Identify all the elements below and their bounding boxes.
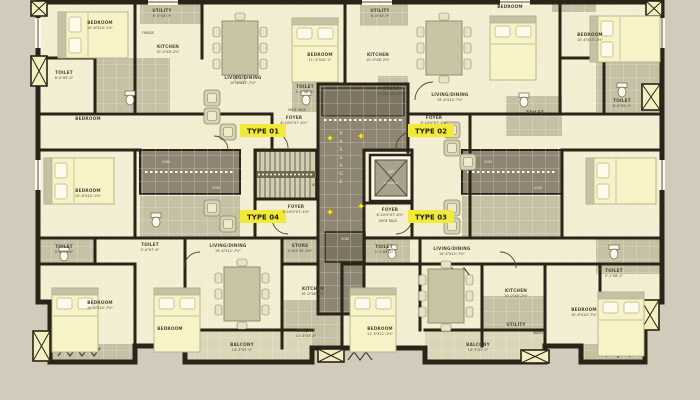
dims-bedroom-tr2: 10'-6"X10'-1½" [577,38,603,42]
label-store-tr: STORE [383,86,400,91]
type-02-label: TYPE 02 [415,128,447,136]
label-toilet-tl: TOILET [55,70,73,75]
label-foyer-3: FOYER [288,204,305,209]
label-kitchen-bc: KITCHEN [302,286,324,291]
label-utility-tr: UTILITY [370,8,390,13]
label-bedroom-bc: BEDROOM [367,326,392,331]
sofa-seat [204,90,220,106]
dims-bedroom-bl1: 10'-6"X10'-7½" [87,306,113,310]
bed [154,288,200,352]
floor-plan-drawing: TYPE 01 TYPE 02 TYPE 04 TYPE 03 BEDROOM … [0,0,700,400]
label-toilet-br: TOILET [605,268,623,273]
dims-utility-tl: 6'-0"X3'-9" [153,14,172,18]
label-kitchen-br: KITCHEN [505,288,527,293]
label-toilet-bl: TOILET [55,244,73,249]
toilet-wc [617,83,627,97]
bed [598,292,644,356]
dims-foyer-4: 6'-10½"X7'-4½" [376,213,404,217]
label-kitchen-tr: KITCHEN [367,52,389,57]
label-toilet-bc: TOILET [375,244,393,249]
label-lift: LIFT [388,170,394,174]
bed [52,288,98,352]
floor-plan: TYPE 01 TYPE 02 TYPE 04 TYPE 03 BEDROOM … [0,0,700,400]
label-shoe-rack-2: SHOE RACK [379,219,398,223]
label-up: UP [312,183,316,187]
label-bedroom-tr2: BEDROOM [577,32,602,37]
label-wash-br: WASH [533,331,543,335]
label-passage: PASSAGE [338,131,343,188]
sofa-seat [444,140,460,156]
sofa-seat [220,216,236,232]
label-bedroom-tc: BEDROOM [307,52,332,57]
dims-foyer-3: 6'-10½"X7'-4½" [282,210,310,214]
dims-bedroom-bc: 11'-3"X12'-1½" [367,332,393,336]
sofa-seat [204,108,220,124]
label-toilet-tc: TOILET [296,84,314,89]
label-store-bl: STORE [292,243,309,248]
lift-shaft [370,155,412,201]
dims-kitchen-tr: 10'-0"X8'-2½" [366,58,390,62]
label-living-b1: LIVING/DINING [209,243,246,248]
dims-kitchen-tl: 10'-0"X8'-2½" [156,50,180,54]
toilet-wc [609,245,619,259]
label-utility-bc: UTILITY [296,328,316,333]
dims-living-t2: 19'-4"X12'-7½" [437,98,463,102]
label-bedroom-tl2: BEDROOM [75,116,100,121]
bed [58,12,128,58]
label-void-3: VOID [484,160,493,164]
dims-living-b1: 19'-4"X12'-7½" [215,249,241,253]
label-foyer-4: FOYER [382,207,399,212]
sofa-seat [220,124,236,140]
dims-toilet-tl: 8'-0"X5'-0" [55,76,74,80]
label-living-t2: LIVING/DINING [431,92,468,97]
dims-bedroom-tc: 11'-3"X10'-2" [309,58,332,62]
toilet-wc [519,93,529,107]
label-bedroom-tl: BEDROOM [87,20,112,25]
label-bedroom-tr1: BEDROOM [497,4,522,9]
label-bedroom-br: BEDROOM [571,307,596,312]
toilet-wc [125,91,135,105]
dims-balcony-r: 14'-3"X5'-0" [468,348,489,352]
dims-toilet-bc: 5'-1"X6'-2" [375,250,394,254]
dims-lift: 5'-0"X5'-9" [383,181,399,185]
label-living-t1: LIVING/DINING [224,75,261,80]
type-03-label: TYPE 03 [415,214,447,222]
dims-toilet-tc: 5'-1"X6'-2" [296,90,315,94]
sofa-seat [460,154,476,170]
dims-living-t1: 19'-4"X12'-7½" [230,81,256,85]
bed [490,16,536,80]
dims-bedroom-ml: 10'-6"X10'-1½" [75,194,101,198]
dims-bedroom-br: 10'-6"X10'-7½" [571,313,597,317]
label-foyer-1: FOYER [286,115,303,120]
label-kitchen-tl: KITCHEN [157,44,179,49]
dims-store-tr: 4'-6½"X5'-4½" [379,92,404,96]
label-utility-br: UTILITY [506,322,526,327]
label-living-b2: LIVING/DINING [433,246,470,251]
label-bedroom-bl1: BEDROOM [87,300,112,305]
dims-store-bl: 4'-6½"X5'-4½" [288,249,313,253]
dims-living-b2: 19'-4"X12'-7½" [439,252,465,256]
label-utility-tl: UTILITY [152,8,172,13]
dims-foyer-1: 6'-10½"X7'-4½" [280,121,308,125]
dims-bedroom-tl: 10'-6"X10'-1½" [87,26,113,30]
dims-utility-tr: 6'-0"X3'-9" [371,14,390,18]
dims-toilet-ml: 5'-0"X7'-6" [141,248,160,252]
label-void-5: VOID [341,237,350,241]
staircase [256,151,316,199]
type-01-label: TYPE 01 [247,128,279,136]
label-bedroom-bl2: BEDROOM [157,326,182,331]
toilet-wc [151,213,161,227]
label-balcony-l: BALCONY [230,342,254,347]
label-toilet-tr: TOILET [613,98,631,103]
label-foyer-2: FOYER [426,115,443,120]
dims-kitchen-br: 10'-0"X8'-2½" [504,294,528,298]
label-void-4: VOID [534,186,543,190]
label-toilet-ml: TOILET [141,242,159,247]
label-void-1: VOID [162,160,171,164]
bed [292,18,338,82]
label-fridge-tl: FRIDGE [142,31,154,35]
dims-utility-bc: 11'-3"X3'-4" [296,334,317,338]
sofa-seat [204,200,220,216]
label-shoe-rack-1: SHOE RACK [288,108,307,112]
dims-kitchen-bc: 10'-0"X8'-2½" [301,292,325,296]
dims-toilet-bl: 5'-0"X7'-6" [55,250,74,254]
dims-toilet-tr: 8'-0"X5'-0" [613,104,632,108]
label-bedroom-ml: BEDROOM [75,188,100,193]
dims-toilet-br: 5'-1"X6'-2" [605,274,624,278]
label-void-2: VOID [212,186,221,190]
bed [350,288,396,352]
dims-balcony-l: 14'-3"X5'-0" [232,348,253,352]
dims-foyer-2: 6'-10½"X7'-4½" [420,121,448,125]
label-balcony-r: BALCONY [466,342,490,347]
bed [586,158,656,204]
type-04-label: TYPE 04 [247,214,279,222]
label-toilet-tr2: TOILET [526,110,544,115]
